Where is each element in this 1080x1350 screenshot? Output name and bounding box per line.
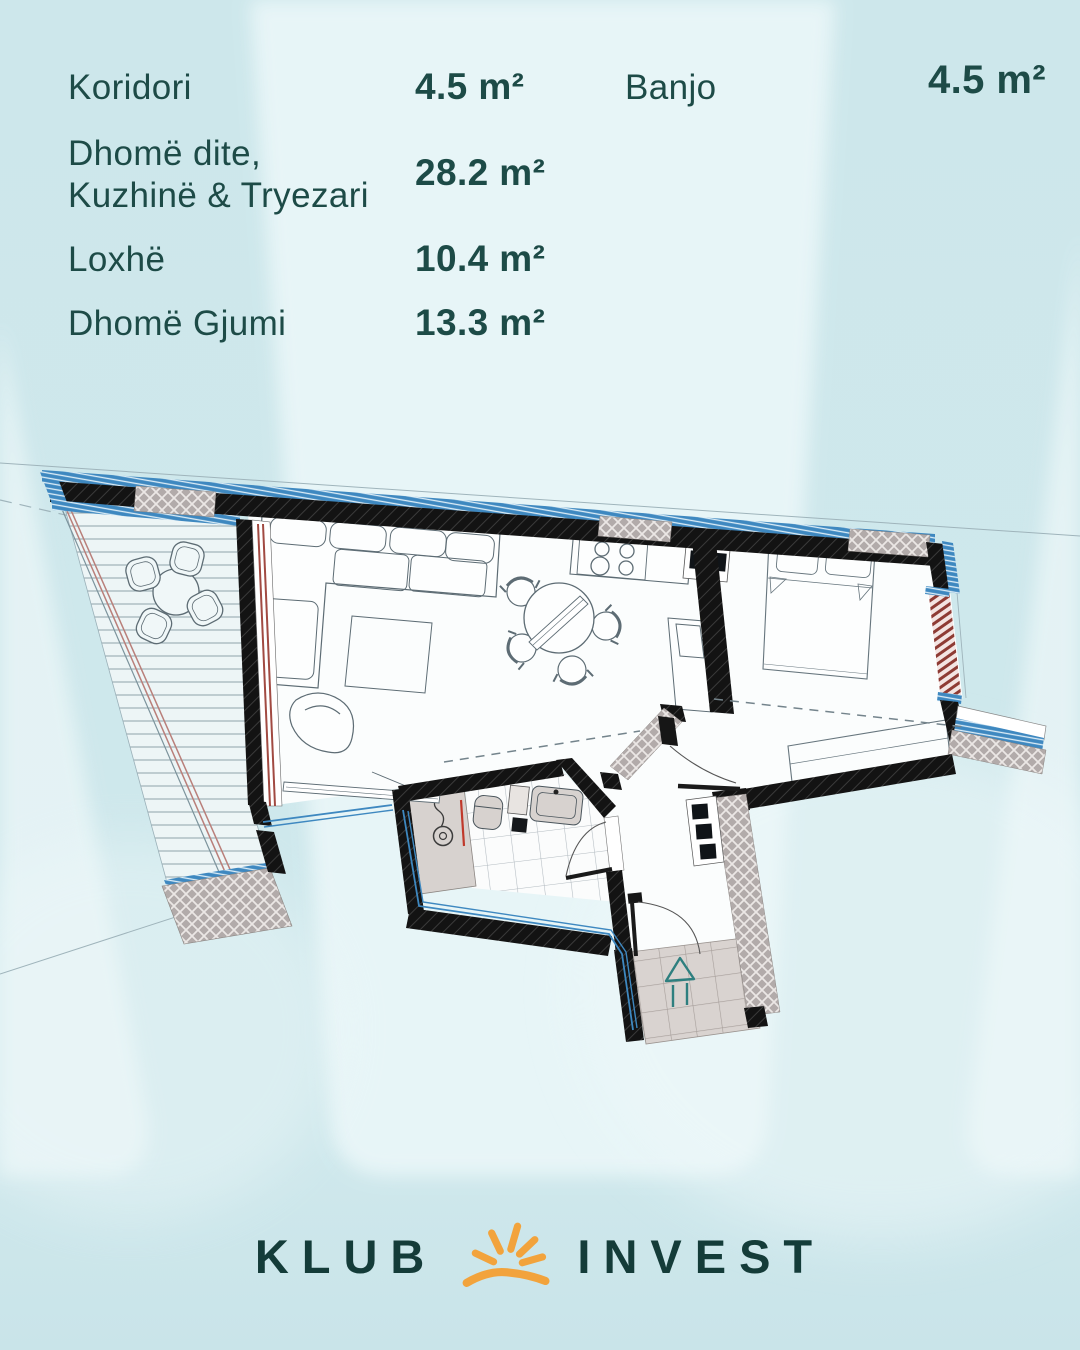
toilet: [472, 795, 503, 831]
sun-rays-icon: [459, 1216, 555, 1296]
brand-logo: KLUB INVEST: [0, 1216, 1080, 1296]
poster: Koridori 4.5 m² Banjo 4.5 m² Dhomë dite,…: [0, 0, 1080, 1350]
bathroom-cabinet: [508, 785, 530, 815]
washbasin: [529, 785, 583, 825]
bed: [763, 541, 875, 679]
brand-word-invest: INVEST: [577, 1233, 825, 1280]
floor-drain: [511, 817, 527, 832]
brand-word-klub: KLUB: [255, 1233, 438, 1280]
floor-plan: [0, 0, 1080, 1350]
